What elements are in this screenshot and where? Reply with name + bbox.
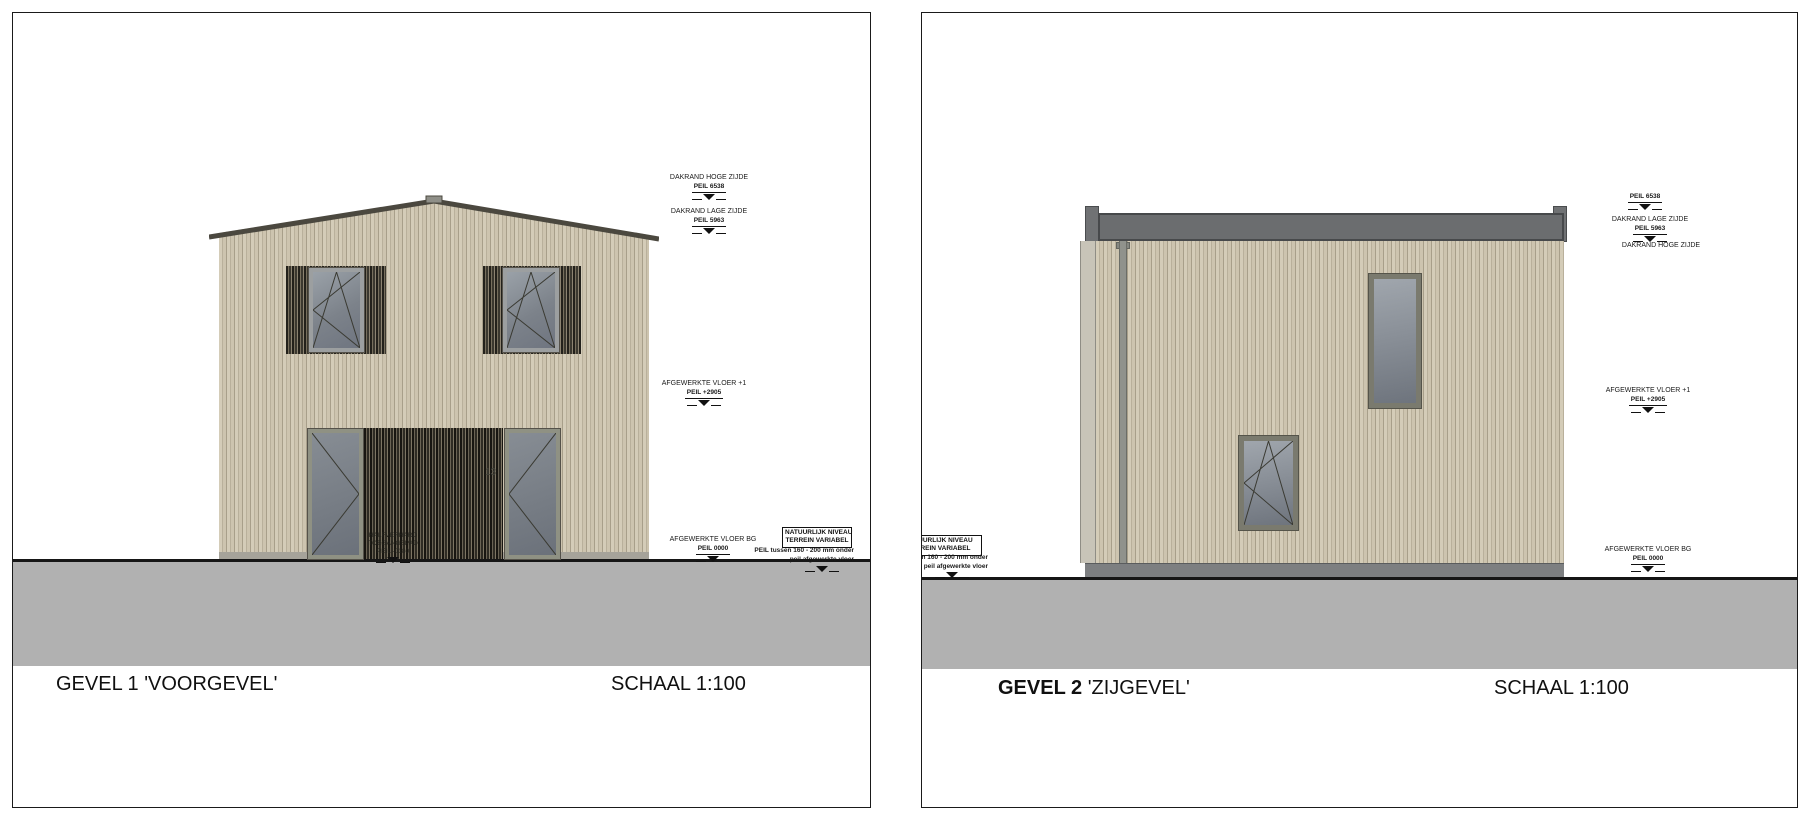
peil-value: PEIL 6538 <box>692 183 727 193</box>
annotation-vloer-plus1: AFGEWERKTE VLOER +1 PEIL +2905 <box>654 379 754 408</box>
scale-label: SCHAAL 1:100 <box>611 673 746 696</box>
peil-value: PEIL 6538 <box>1628 193 1663 203</box>
scale-label: SCHAAL 1:100 <box>1494 677 1629 700</box>
gevel-number: GEVEL 2 <box>998 677 1082 699</box>
door-right <box>505 429 560 559</box>
gevel-name: 'VOORGEVEL' <box>144 673 277 695</box>
level-marker-icon <box>935 572 969 580</box>
annotation-label: DAKRAND LAGE ZIJDE <box>1600 215 1700 224</box>
panel-gevel-2: PEIL 6538 DAKRAND LAGE ZIJDE PEIL 5963 D… <box>921 12 1798 808</box>
annotation-label: AFGEWERKTE VLOER +1 <box>654 379 754 388</box>
facade-cladding <box>1096 241 1564 563</box>
panel-gevel-1: 13 HALFVERHARD TOEGANGSPAD PEIL -0180 DA… <box>12 12 871 808</box>
level-marker-icon <box>376 557 410 565</box>
gevel-name: 'ZIJGEVEL' <box>1088 677 1190 699</box>
level-marker-icon <box>696 556 730 564</box>
gevel-number: GEVEL 1 <box>56 673 139 695</box>
roof-edge-band <box>1098 213 1564 241</box>
toegangspad-line3: PEIL -0180 <box>343 548 443 556</box>
terrein-box-line2: TERREIN VARIABEL <box>785 537 849 545</box>
terrein-marker-wrap <box>935 571 969 580</box>
roof-fascia <box>209 191 659 243</box>
toegangspad-note: HALFVERHARD TOEGANGSPAD PEIL -0180 <box>343 532 443 565</box>
window-opening-symbol-icon <box>1244 441 1293 525</box>
terrein-note-line1: PEIL tussen 160 - 200 mm onder <box>739 547 854 556</box>
building-front-elevation: 13 <box>219 197 649 559</box>
window-upper-right <box>503 268 559 352</box>
annotation-label: DAKRAND HOGE ZIJDE <box>659 173 759 182</box>
window-lower <box>1239 436 1298 530</box>
peil-value: PEIL 5963 <box>692 217 727 227</box>
terrein-variabel-box: NATUURLIJK NIVEAU TERREIN VARIABEL <box>921 535 982 556</box>
corner-trim <box>1080 241 1096 563</box>
window-opening-symbol-icon <box>313 272 360 348</box>
peil-value: PEIL +2905 <box>1629 396 1667 406</box>
annotation-label: DAKRAND HOGE ZIJDE <box>1611 241 1711 250</box>
level-marker-icon <box>1628 204 1662 212</box>
toegangspad-line1: HALFVERHARD <box>343 532 443 540</box>
level-marker-icon <box>1631 566 1665 574</box>
level-marker-icon <box>692 194 726 202</box>
level-marker-icon <box>687 400 721 408</box>
terrein-note: PEIL tussen 160 - 200 mm onder peil afge… <box>921 554 988 572</box>
plinth <box>1085 563 1564 577</box>
annotation-label: AFGEWERKTE VLOER BG <box>1598 545 1698 554</box>
parapet-post-left <box>1085 206 1099 242</box>
terrein-note: PEIL tussen 160 - 200 mm onder peil afge… <box>739 547 854 565</box>
annotation-vloer-plus1: AFGEWERKTE VLOER +1 PEIL +2905 <box>1598 386 1698 415</box>
annotation-label: AFGEWERKTE VLOER BG <box>663 535 763 544</box>
panel-title: GEVEL 2 'ZIJGEVEL' <box>998 677 1190 700</box>
terrain-band <box>13 562 870 666</box>
level-marker-icon <box>1631 407 1665 415</box>
terrein-marker-wrap <box>805 565 839 574</box>
terrein-box-line1: NATUURLIJK NIVEAU <box>921 537 979 545</box>
annotation-dakrand-hoge: DAKRAND HOGE ZIJDE PEIL 6538 <box>659 173 759 202</box>
annotation-dakrand-hoge: DAKRAND HOGE ZIJDE <box>1611 241 1711 250</box>
annotation-vloer-bg: AFGEWERKTE VLOER BG PEIL 0000 <box>1598 545 1698 574</box>
peil-value: PEIL 0000 <box>1631 555 1666 565</box>
peil-value: PEIL 5963 <box>1633 225 1668 235</box>
annotation-label: DAKRAND LAGE ZIJDE <box>659 207 759 216</box>
annotation-dakrand-lage: DAKRAND LAGE ZIJDE PEIL 5963 <box>659 207 759 236</box>
window-opening-symbol-icon <box>507 272 555 348</box>
terrein-note-line1: PEIL tussen 160 - 200 mm onder <box>921 554 988 563</box>
annotation-peil-top: PEIL 6538 <box>1595 192 1695 212</box>
downpipe <box>1119 241 1127 576</box>
toegangspad-line2: TOEGANGSPAD <box>343 540 443 548</box>
terrein-variabel-box: NATUURLIJK NIVEAU TERREIN VARIABEL <box>782 527 852 548</box>
window-tall-fixed <box>1369 274 1421 408</box>
level-marker-icon <box>692 228 726 236</box>
terrein-box-line1: NATUURLIJK NIVEAU <box>785 529 849 537</box>
level-marker-icon <box>805 566 839 574</box>
terrein-box-line2: TERREIN VARIABEL <box>921 545 979 553</box>
window-upper-left <box>309 268 364 352</box>
terrain-band <box>922 580 1797 669</box>
elevation-drawing-sheet: { "colors": { "facade_light": "#d4ccb8",… <box>0 0 1805 826</box>
house-number: 13 <box>485 467 496 478</box>
door-opening-symbol-icon <box>509 433 556 555</box>
terrein-note-line2: peil afgewerkte vloer <box>739 556 854 565</box>
peil-value: PEIL 0000 <box>696 545 731 555</box>
peil-value: PEIL +2905 <box>685 389 723 399</box>
annotation-dakrand-lage: DAKRAND LAGE ZIJDE PEIL 5963 <box>1600 215 1700 244</box>
annotation-label: AFGEWERKTE VLOER +1 <box>1598 386 1698 395</box>
panel-title: GEVEL 1 'VOORGEVEL' <box>56 673 277 696</box>
